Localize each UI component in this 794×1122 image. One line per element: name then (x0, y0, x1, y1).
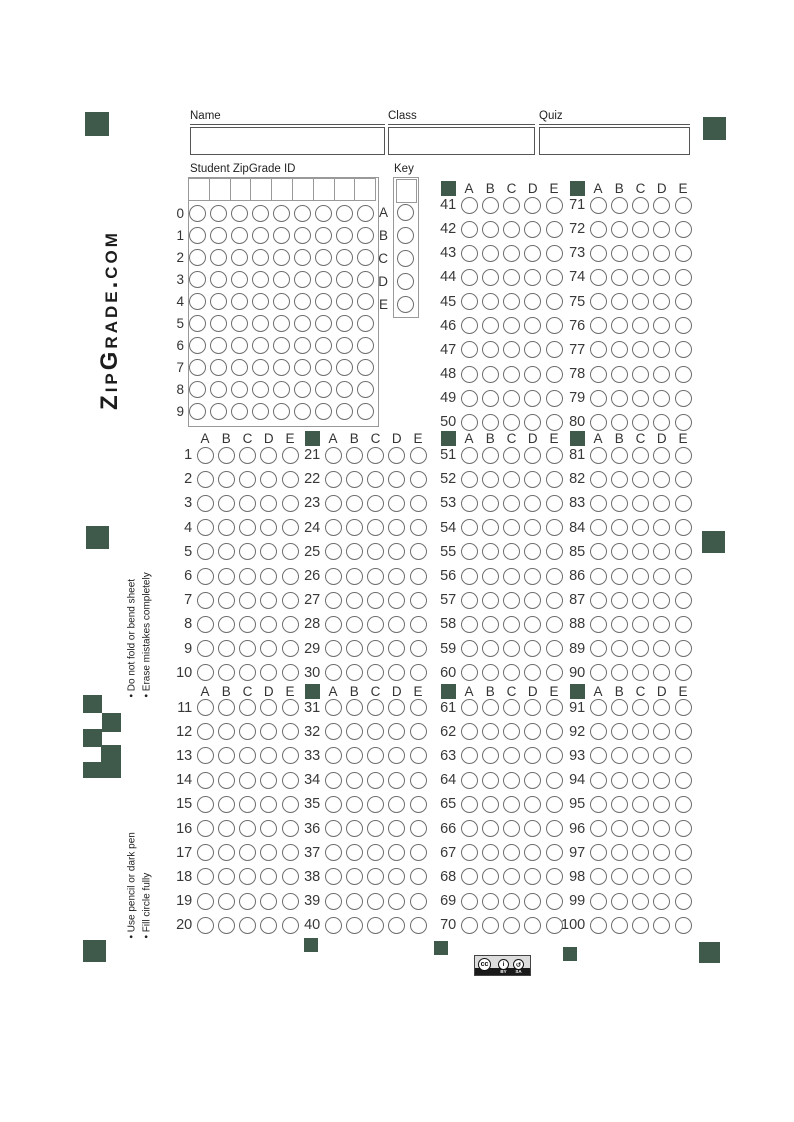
bubble-q58-A[interactable] (461, 616, 478, 633)
bubble-q78-B[interactable] (611, 366, 628, 383)
bubble-q65-A[interactable] (461, 796, 478, 813)
bubble-q83-C[interactable] (632, 495, 649, 512)
bubble-q49-A[interactable] (461, 390, 478, 407)
bubble-q7-C[interactable] (239, 592, 256, 609)
bubble-q56-A[interactable] (461, 568, 478, 585)
bubble-q1-C[interactable] (239, 447, 256, 464)
bubble-q31-D[interactable] (388, 699, 405, 716)
bubble-q46-D[interactable] (524, 317, 541, 334)
bubble-q66-B[interactable] (482, 820, 499, 837)
bubble-q94-C[interactable] (632, 772, 649, 789)
bubble-q3-B[interactable] (218, 495, 235, 512)
bubble-q73-A[interactable] (590, 245, 607, 262)
bubble-q85-C[interactable] (632, 543, 649, 560)
id-bubble-digit3-col7[interactable] (315, 271, 332, 288)
bubble-q82-C[interactable] (632, 471, 649, 488)
bubble-q82-E[interactable] (675, 471, 692, 488)
bubble-q25-A[interactable] (325, 543, 342, 560)
bubble-q20-D[interactable] (260, 917, 277, 934)
id-bubble-digit5-col5[interactable] (273, 315, 290, 332)
bubble-q61-D[interactable] (524, 699, 541, 716)
bubble-q54-C[interactable] (503, 519, 520, 536)
id-bubble-digit9-col1[interactable] (189, 403, 206, 420)
bubble-q52-C[interactable] (503, 471, 520, 488)
id-bubble-digit0-col5[interactable] (273, 205, 290, 222)
bubble-q34-A[interactable] (325, 772, 342, 789)
bubble-q41-D[interactable] (524, 197, 541, 214)
bubble-q47-A[interactable] (461, 341, 478, 358)
id-bubble-digit4-col2[interactable] (210, 293, 227, 310)
id-bubble-digit6-col1[interactable] (189, 337, 206, 354)
id-bubble-digit7-col7[interactable] (315, 359, 332, 376)
bubble-q35-C[interactable] (367, 796, 384, 813)
bubble-q40-A[interactable] (325, 917, 342, 934)
bubble-q13-B[interactable] (218, 747, 235, 764)
bubble-q66-D[interactable] (524, 820, 541, 837)
bubble-q53-D[interactable] (524, 495, 541, 512)
bubble-q84-B[interactable] (611, 519, 628, 536)
id-bubble-digit0-col9[interactable] (357, 205, 374, 222)
bubble-q59-A[interactable] (461, 640, 478, 657)
bubble-q45-B[interactable] (482, 293, 499, 310)
bubble-q89-E[interactable] (675, 640, 692, 657)
bubble-q37-C[interactable] (367, 844, 384, 861)
bubble-q31-C[interactable] (367, 699, 384, 716)
bubble-q28-A[interactable] (325, 616, 342, 633)
bubble-q82-B[interactable] (611, 471, 628, 488)
id-bubble-digit0-col2[interactable] (210, 205, 227, 222)
id-bubble-digit5-col9[interactable] (357, 315, 374, 332)
bubble-q10-A[interactable] (197, 664, 214, 681)
id-bubble-digit1-col2[interactable] (210, 227, 227, 244)
bubble-q12-C[interactable] (239, 723, 256, 740)
id-bubble-digit1-col6[interactable] (294, 227, 311, 244)
bubble-q57-B[interactable] (482, 592, 499, 609)
bubble-q18-D[interactable] (260, 868, 277, 885)
bubble-q59-D[interactable] (524, 640, 541, 657)
bubble-q87-B[interactable] (611, 592, 628, 609)
bubble-q37-B[interactable] (346, 844, 363, 861)
bubble-q95-C[interactable] (632, 796, 649, 813)
id-bubble-digit2-col6[interactable] (294, 249, 311, 266)
bubble-q71-A[interactable] (590, 197, 607, 214)
bubble-q50-C[interactable] (503, 414, 520, 431)
bubble-q58-D[interactable] (524, 616, 541, 633)
bubble-q72-E[interactable] (675, 221, 692, 238)
bubble-q93-E[interactable] (675, 747, 692, 764)
bubble-q60-B[interactable] (482, 664, 499, 681)
bubble-q49-D[interactable] (524, 390, 541, 407)
bubble-q97-A[interactable] (590, 844, 607, 861)
bubble-q84-D[interactable] (653, 519, 670, 536)
bubble-q63-C[interactable] (503, 747, 520, 764)
bubble-q69-D[interactable] (524, 893, 541, 910)
bubble-q62-C[interactable] (503, 723, 520, 740)
bubble-q79-A[interactable] (590, 390, 607, 407)
bubble-q24-B[interactable] (346, 519, 363, 536)
id-bubble-digit0-col7[interactable] (315, 205, 332, 222)
bubble-q17-A[interactable] (197, 844, 214, 861)
bubble-q87-E[interactable] (675, 592, 692, 609)
id-writein-cell-6[interactable] (292, 178, 314, 201)
id-bubble-digit5-col2[interactable] (210, 315, 227, 332)
bubble-q42-D[interactable] (524, 221, 541, 238)
bubble-q7-B[interactable] (218, 592, 235, 609)
bubble-q99-A[interactable] (590, 893, 607, 910)
bubble-q54-D[interactable] (524, 519, 541, 536)
id-bubble-digit6-col3[interactable] (231, 337, 248, 354)
id-bubble-digit7-col2[interactable] (210, 359, 227, 376)
bubble-q16-C[interactable] (239, 820, 256, 837)
id-bubble-digit4-col3[interactable] (231, 293, 248, 310)
id-bubble-digit6-col9[interactable] (357, 337, 374, 354)
bubble-q99-D[interactable] (653, 893, 670, 910)
bubble-q77-B[interactable] (611, 341, 628, 358)
id-bubble-digit6-col4[interactable] (252, 337, 269, 354)
key-bubble-C[interactable] (397, 250, 414, 267)
id-bubble-digit0-col6[interactable] (294, 205, 311, 222)
id-bubble-digit4-col7[interactable] (315, 293, 332, 310)
bubble-q14-C[interactable] (239, 772, 256, 789)
bubble-q41-B[interactable] (482, 197, 499, 214)
bubble-q73-C[interactable] (632, 245, 649, 262)
bubble-q39-D[interactable] (388, 893, 405, 910)
bubble-q63-B[interactable] (482, 747, 499, 764)
bubble-q85-A[interactable] (590, 543, 607, 560)
bubble-q100-C[interactable] (632, 917, 649, 934)
bubble-q48-A[interactable] (461, 366, 478, 383)
bubble-q72-D[interactable] (653, 221, 670, 238)
id-bubble-digit2-col5[interactable] (273, 249, 290, 266)
bubble-q75-A[interactable] (590, 293, 607, 310)
bubble-q74-A[interactable] (590, 269, 607, 286)
bubble-q88-B[interactable] (611, 616, 628, 633)
bubble-q91-D[interactable] (653, 699, 670, 716)
bubble-q67-A[interactable] (461, 844, 478, 861)
bubble-q84-E[interactable] (675, 519, 692, 536)
bubble-q76-D[interactable] (653, 317, 670, 334)
bubble-q64-B[interactable] (482, 772, 499, 789)
bubble-q49-B[interactable] (482, 390, 499, 407)
bubble-q32-A[interactable] (325, 723, 342, 740)
bubble-q34-D[interactable] (388, 772, 405, 789)
bubble-q70-C[interactable] (503, 917, 520, 934)
bubble-q39-C[interactable] (367, 893, 384, 910)
bubble-q21-A[interactable] (325, 447, 342, 464)
bubble-q16-A[interactable] (197, 820, 214, 837)
bubble-q33-D[interactable] (388, 747, 405, 764)
bubble-q31-B[interactable] (346, 699, 363, 716)
bubble-q26-A[interactable] (325, 568, 342, 585)
bubble-q4-C[interactable] (239, 519, 256, 536)
bubble-q34-B[interactable] (346, 772, 363, 789)
bubble-q80-E[interactable] (675, 414, 692, 431)
bubble-q95-B[interactable] (611, 796, 628, 813)
id-bubble-digit3-col2[interactable] (210, 271, 227, 288)
bubble-q75-E[interactable] (675, 293, 692, 310)
bubble-q44-C[interactable] (503, 269, 520, 286)
bubble-q64-D[interactable] (524, 772, 541, 789)
id-bubble-digit5-col3[interactable] (231, 315, 248, 332)
bubble-q92-E[interactable] (675, 723, 692, 740)
bubble-q55-A[interactable] (461, 543, 478, 560)
bubble-q83-E[interactable] (675, 495, 692, 512)
bubble-q19-D[interactable] (260, 893, 277, 910)
bubble-q10-B[interactable] (218, 664, 235, 681)
id-bubble-digit5-col4[interactable] (252, 315, 269, 332)
bubble-q72-C[interactable] (632, 221, 649, 238)
bubble-q81-D[interactable] (653, 447, 670, 464)
id-bubble-digit5-col8[interactable] (336, 315, 353, 332)
bubble-q18-B[interactable] (218, 868, 235, 885)
bubble-q79-C[interactable] (632, 390, 649, 407)
bubble-q48-D[interactable] (524, 366, 541, 383)
bubble-q51-D[interactable] (524, 447, 541, 464)
bubble-q73-E[interactable] (675, 245, 692, 262)
id-bubble-digit1-col9[interactable] (357, 227, 374, 244)
id-bubble-digit9-col5[interactable] (273, 403, 290, 420)
bubble-q98-C[interactable] (632, 868, 649, 885)
bubble-q3-A[interactable] (197, 495, 214, 512)
id-bubble-digit6-col5[interactable] (273, 337, 290, 354)
bubble-q43-D[interactable] (524, 245, 541, 262)
bubble-q92-B[interactable] (611, 723, 628, 740)
bubble-q100-E[interactable] (675, 917, 692, 934)
bubble-q74-B[interactable] (611, 269, 628, 286)
id-bubble-digit9-col8[interactable] (336, 403, 353, 420)
id-writein-cell-2[interactable] (209, 178, 231, 201)
id-bubble-digit3-col6[interactable] (294, 271, 311, 288)
bubble-q90-D[interactable] (653, 664, 670, 681)
bubble-q19-C[interactable] (239, 893, 256, 910)
bubble-q38-B[interactable] (346, 868, 363, 885)
id-bubble-digit2-col7[interactable] (315, 249, 332, 266)
bubble-q29-B[interactable] (346, 640, 363, 657)
id-bubble-digit1-col4[interactable] (252, 227, 269, 244)
bubble-q41-A[interactable] (461, 197, 478, 214)
id-writein-cell-9[interactable] (354, 178, 376, 201)
bubble-q74-E[interactable] (675, 269, 692, 286)
bubble-q42-C[interactable] (503, 221, 520, 238)
bubble-q92-A[interactable] (590, 723, 607, 740)
bubble-q48-C[interactable] (503, 366, 520, 383)
bubble-q15-D[interactable] (260, 796, 277, 813)
bubble-q51-B[interactable] (482, 447, 499, 464)
bubble-q79-B[interactable] (611, 390, 628, 407)
bubble-q62-A[interactable] (461, 723, 478, 740)
id-bubble-digit0-col8[interactable] (336, 205, 353, 222)
id-bubble-digit9-col6[interactable] (294, 403, 311, 420)
bubble-q65-C[interactable] (503, 796, 520, 813)
bubble-q55-D[interactable] (524, 543, 541, 560)
bubble-q94-D[interactable] (653, 772, 670, 789)
bubble-q8-B[interactable] (218, 616, 235, 633)
bubble-q28-B[interactable] (346, 616, 363, 633)
bubble-q86-B[interactable] (611, 568, 628, 585)
bubble-q44-D[interactable] (524, 269, 541, 286)
bubble-q57-D[interactable] (524, 592, 541, 609)
bubble-q68-A[interactable] (461, 868, 478, 885)
bubble-q11-A[interactable] (197, 699, 214, 716)
bubble-q55-B[interactable] (482, 543, 499, 560)
bubble-q36-D[interactable] (388, 820, 405, 837)
id-bubble-digit8-col8[interactable] (336, 381, 353, 398)
bubble-q97-B[interactable] (611, 844, 628, 861)
id-bubble-digit4-col6[interactable] (294, 293, 311, 310)
bubble-q46-B[interactable] (482, 317, 499, 334)
bubble-q80-B[interactable] (611, 414, 628, 431)
bubble-q75-B[interactable] (611, 293, 628, 310)
bubble-q90-B[interactable] (611, 664, 628, 681)
bubble-q67-B[interactable] (482, 844, 499, 861)
bubble-q86-D[interactable] (653, 568, 670, 585)
id-bubble-digit0-col4[interactable] (252, 205, 269, 222)
bubble-q82-A[interactable] (590, 471, 607, 488)
bubble-q74-D[interactable] (653, 269, 670, 286)
key-bubble-E[interactable] (397, 296, 414, 313)
bubble-q16-B[interactable] (218, 820, 235, 837)
name-input-box[interactable] (190, 127, 385, 155)
bubble-q53-B[interactable] (482, 495, 499, 512)
bubble-q25-D[interactable] (388, 543, 405, 560)
bubble-q77-D[interactable] (653, 341, 670, 358)
bubble-q22-D[interactable] (388, 471, 405, 488)
bubble-q81-B[interactable] (611, 447, 628, 464)
bubble-q97-E[interactable] (675, 844, 692, 861)
bubble-q1-B[interactable] (218, 447, 235, 464)
bubble-q44-A[interactable] (461, 269, 478, 286)
bubble-q29-C[interactable] (367, 640, 384, 657)
bubble-q61-B[interactable] (482, 699, 499, 716)
bubble-q48-B[interactable] (482, 366, 499, 383)
bubble-q45-D[interactable] (524, 293, 541, 310)
bubble-q59-C[interactable] (503, 640, 520, 657)
bubble-q46-A[interactable] (461, 317, 478, 334)
id-bubble-digit1-col3[interactable] (231, 227, 248, 244)
bubble-q57-A[interactable] (461, 592, 478, 609)
bubble-q36-A[interactable] (325, 820, 342, 837)
id-bubble-digit8-col1[interactable] (189, 381, 206, 398)
bubble-q79-E[interactable] (675, 390, 692, 407)
bubble-q47-D[interactable] (524, 341, 541, 358)
bubble-q100-D[interactable] (653, 917, 670, 934)
bubble-q20-A[interactable] (197, 917, 214, 934)
bubble-q65-B[interactable] (482, 796, 499, 813)
id-bubble-digit2-col3[interactable] (231, 249, 248, 266)
bubble-q81-E[interactable] (675, 447, 692, 464)
bubble-q21-D[interactable] (388, 447, 405, 464)
bubble-q70-A[interactable] (461, 917, 478, 934)
id-bubble-digit4-col8[interactable] (336, 293, 353, 310)
id-bubble-digit6-col8[interactable] (336, 337, 353, 354)
bubble-q75-D[interactable] (653, 293, 670, 310)
bubble-q36-C[interactable] (367, 820, 384, 837)
bubble-q69-C[interactable] (503, 893, 520, 910)
bubble-q13-C[interactable] (239, 747, 256, 764)
bubble-q69-A[interactable] (461, 893, 478, 910)
bubble-q30-C[interactable] (367, 664, 384, 681)
id-bubble-digit2-col4[interactable] (252, 249, 269, 266)
id-bubble-digit6-col2[interactable] (210, 337, 227, 354)
bubble-q84-C[interactable] (632, 519, 649, 536)
key-bubble-A[interactable] (397, 204, 414, 221)
bubble-q97-C[interactable] (632, 844, 649, 861)
bubble-q64-C[interactable] (503, 772, 520, 789)
bubble-q4-D[interactable] (260, 519, 277, 536)
bubble-q71-E[interactable] (675, 197, 692, 214)
bubble-q43-B[interactable] (482, 245, 499, 262)
id-bubble-digit7-col4[interactable] (252, 359, 269, 376)
bubble-q60-D[interactable] (524, 664, 541, 681)
bubble-q99-E[interactable] (675, 893, 692, 910)
bubble-q51-C[interactable] (503, 447, 520, 464)
bubble-q31-A[interactable] (325, 699, 342, 716)
bubble-q52-D[interactable] (524, 471, 541, 488)
id-bubble-digit5-col6[interactable] (294, 315, 311, 332)
bubble-q10-D[interactable] (260, 664, 277, 681)
id-bubble-digit5-col7[interactable] (315, 315, 332, 332)
bubble-q68-C[interactable] (503, 868, 520, 885)
bubble-q83-A[interactable] (590, 495, 607, 512)
bubble-q18-C[interactable] (239, 868, 256, 885)
bubble-q61-C[interactable] (503, 699, 520, 716)
bubble-q91-A[interactable] (590, 699, 607, 716)
bubble-q76-B[interactable] (611, 317, 628, 334)
bubble-q38-D[interactable] (388, 868, 405, 885)
bubble-q96-D[interactable] (653, 820, 670, 837)
bubble-q95-E[interactable] (675, 796, 692, 813)
id-bubble-digit2-col9[interactable] (357, 249, 374, 266)
bubble-q76-A[interactable] (590, 317, 607, 334)
bubble-q27-C[interactable] (367, 592, 384, 609)
bubble-q99-B[interactable] (611, 893, 628, 910)
bubble-q73-B[interactable] (611, 245, 628, 262)
id-bubble-digit2-col8[interactable] (336, 249, 353, 266)
id-writein-cell-3[interactable] (230, 178, 252, 201)
bubble-q26-D[interactable] (388, 568, 405, 585)
bubble-q34-C[interactable] (367, 772, 384, 789)
bubble-q73-D[interactable] (653, 245, 670, 262)
bubble-q68-B[interactable] (482, 868, 499, 885)
bubble-q39-A[interactable] (325, 893, 342, 910)
id-bubble-digit4-col5[interactable] (273, 293, 290, 310)
bubble-q24-D[interactable] (388, 519, 405, 536)
bubble-q40-C[interactable] (367, 917, 384, 934)
bubble-q96-C[interactable] (632, 820, 649, 837)
bubble-q54-B[interactable] (482, 519, 499, 536)
bubble-q6-A[interactable] (197, 568, 214, 585)
bubble-q25-C[interactable] (367, 543, 384, 560)
bubble-q78-A[interactable] (590, 366, 607, 383)
bubble-q19-B[interactable] (218, 893, 235, 910)
bubble-q62-D[interactable] (524, 723, 541, 740)
bubble-q71-B[interactable] (611, 197, 628, 214)
bubble-q13-A[interactable] (197, 747, 214, 764)
id-bubble-digit4-col9[interactable] (357, 293, 374, 310)
bubble-q11-C[interactable] (239, 699, 256, 716)
bubble-q92-D[interactable] (653, 723, 670, 740)
bubble-q8-C[interactable] (239, 616, 256, 633)
bubble-q76-C[interactable] (632, 317, 649, 334)
bubble-q42-B[interactable] (482, 221, 499, 238)
bubble-q13-D[interactable] (260, 747, 277, 764)
bubble-q25-B[interactable] (346, 543, 363, 560)
id-bubble-digit6-col6[interactable] (294, 337, 311, 354)
bubble-q97-D[interactable] (653, 844, 670, 861)
bubble-q86-C[interactable] (632, 568, 649, 585)
id-bubble-digit9-col4[interactable] (252, 403, 269, 420)
bubble-q75-C[interactable] (632, 293, 649, 310)
